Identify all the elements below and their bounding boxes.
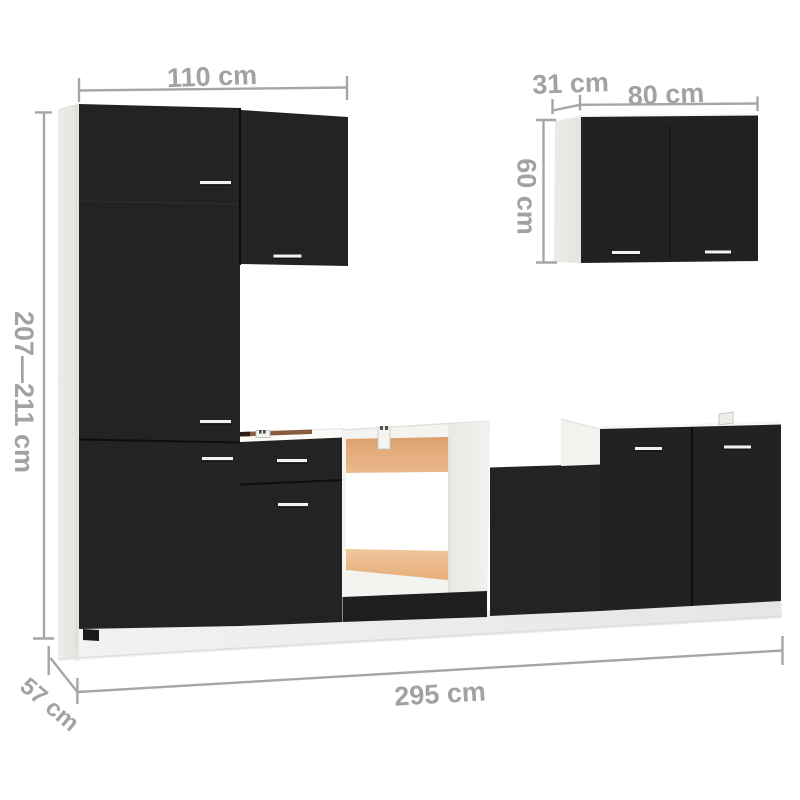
svg-text:80 cm: 80 cm [627, 78, 705, 111]
svg-text:31 cm: 31 cm [532, 67, 610, 100]
svg-text:60 cm: 60 cm [512, 158, 542, 235]
svg-text:295 cm: 295 cm [393, 676, 486, 711]
svg-text:110 cm: 110 cm [166, 60, 257, 93]
svg-text:57 cm: 57 cm [15, 673, 84, 737]
svg-text:207—211 cm: 207—211 cm [9, 311, 39, 473]
